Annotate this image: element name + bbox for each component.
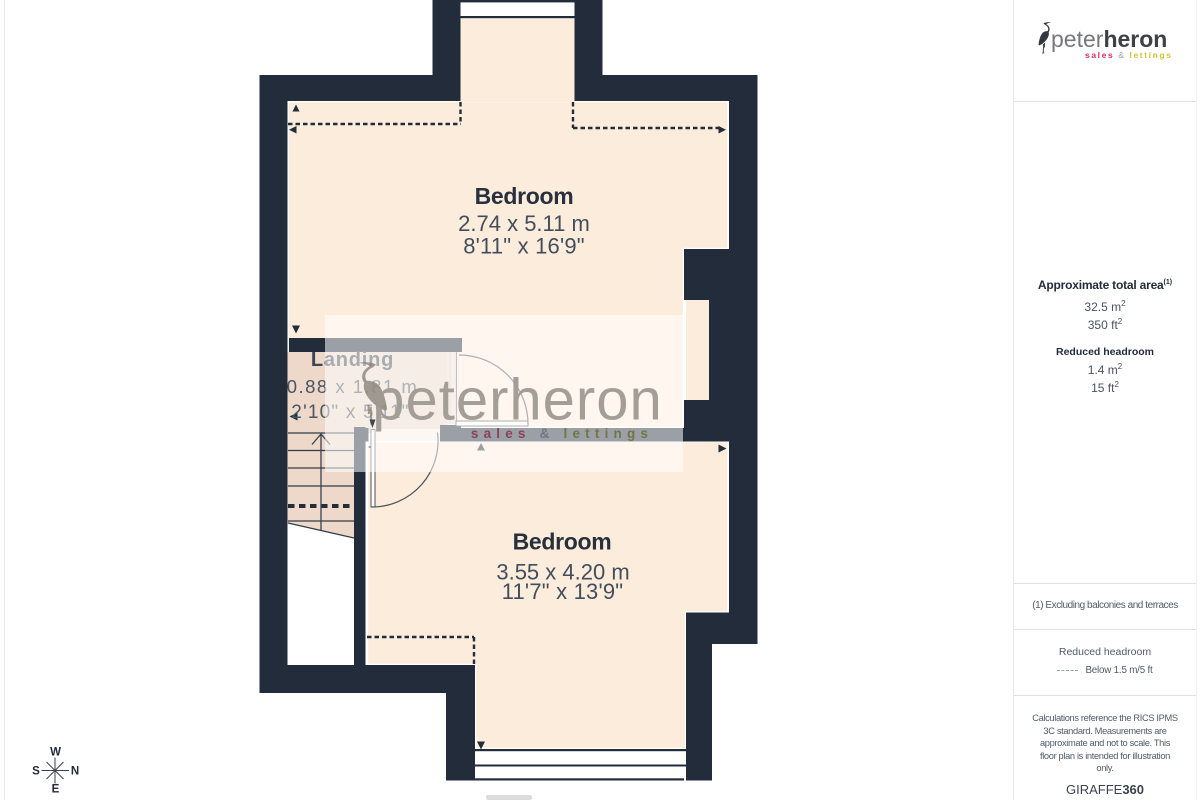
svg-text:Bedroom: Bedroom <box>513 529 612 555</box>
svg-text:S: S <box>32 766 40 778</box>
svg-text:peterheron: peterheron <box>372 368 663 433</box>
svg-text:W: W <box>50 747 61 759</box>
svg-text:E: E <box>52 784 60 796</box>
svg-text:sales & lettings: sales & lettings <box>471 426 653 441</box>
svg-text:Bedroom: Bedroom <box>475 183 574 209</box>
svg-text:N: N <box>71 766 79 778</box>
svg-text:11'7" x 13'9": 11'7" x 13'9" <box>502 579 624 604</box>
svg-text:8'11" x 16'9": 8'11" x 16'9" <box>463 234 585 259</box>
svg-text:2.74 x 5.11 m: 2.74 x 5.11 m <box>458 211 590 236</box>
